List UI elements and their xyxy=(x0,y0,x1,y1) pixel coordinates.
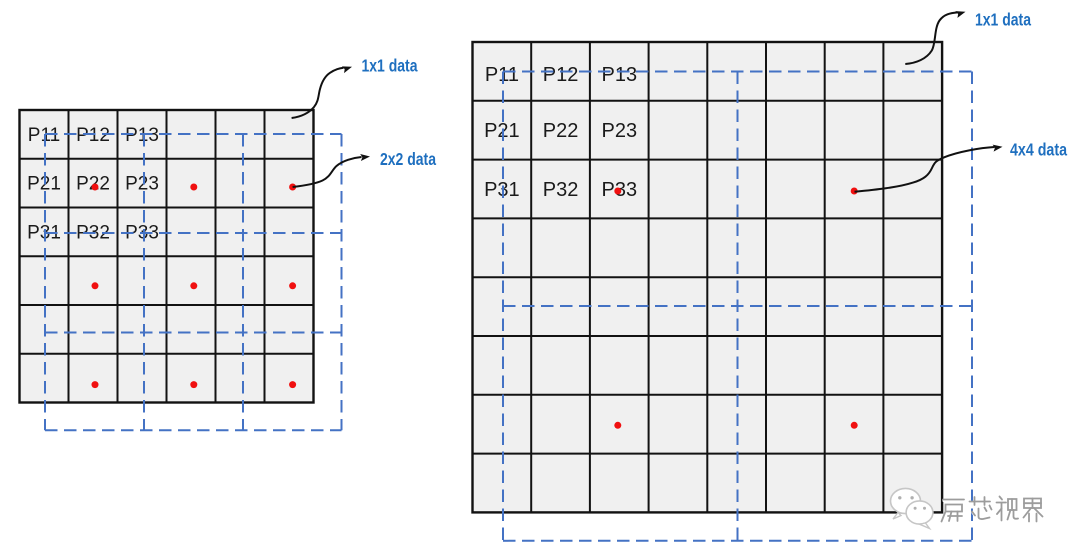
svg-text:2x2 data: 2x2 data xyxy=(380,149,436,169)
svg-text:P32: P32 xyxy=(543,179,579,201)
svg-text:P13: P13 xyxy=(125,125,159,146)
svg-text:P13: P13 xyxy=(602,64,638,86)
svg-text:P21: P21 xyxy=(484,120,520,142)
svg-text:P23: P23 xyxy=(125,174,159,195)
svg-text:P11: P11 xyxy=(485,64,519,86)
svg-text:P22: P22 xyxy=(543,120,579,142)
svg-text:1x1 data: 1x1 data xyxy=(975,9,1031,29)
svg-text:P31: P31 xyxy=(484,179,520,201)
svg-text:4x4 data: 4x4 data xyxy=(1010,139,1067,159)
svg-text:1x1 data: 1x1 data xyxy=(362,56,418,76)
svg-text:P12: P12 xyxy=(543,64,579,86)
svg-text:P23: P23 xyxy=(602,120,638,142)
svg-text:P22: P22 xyxy=(76,174,110,195)
svg-text:P12: P12 xyxy=(76,125,110,146)
